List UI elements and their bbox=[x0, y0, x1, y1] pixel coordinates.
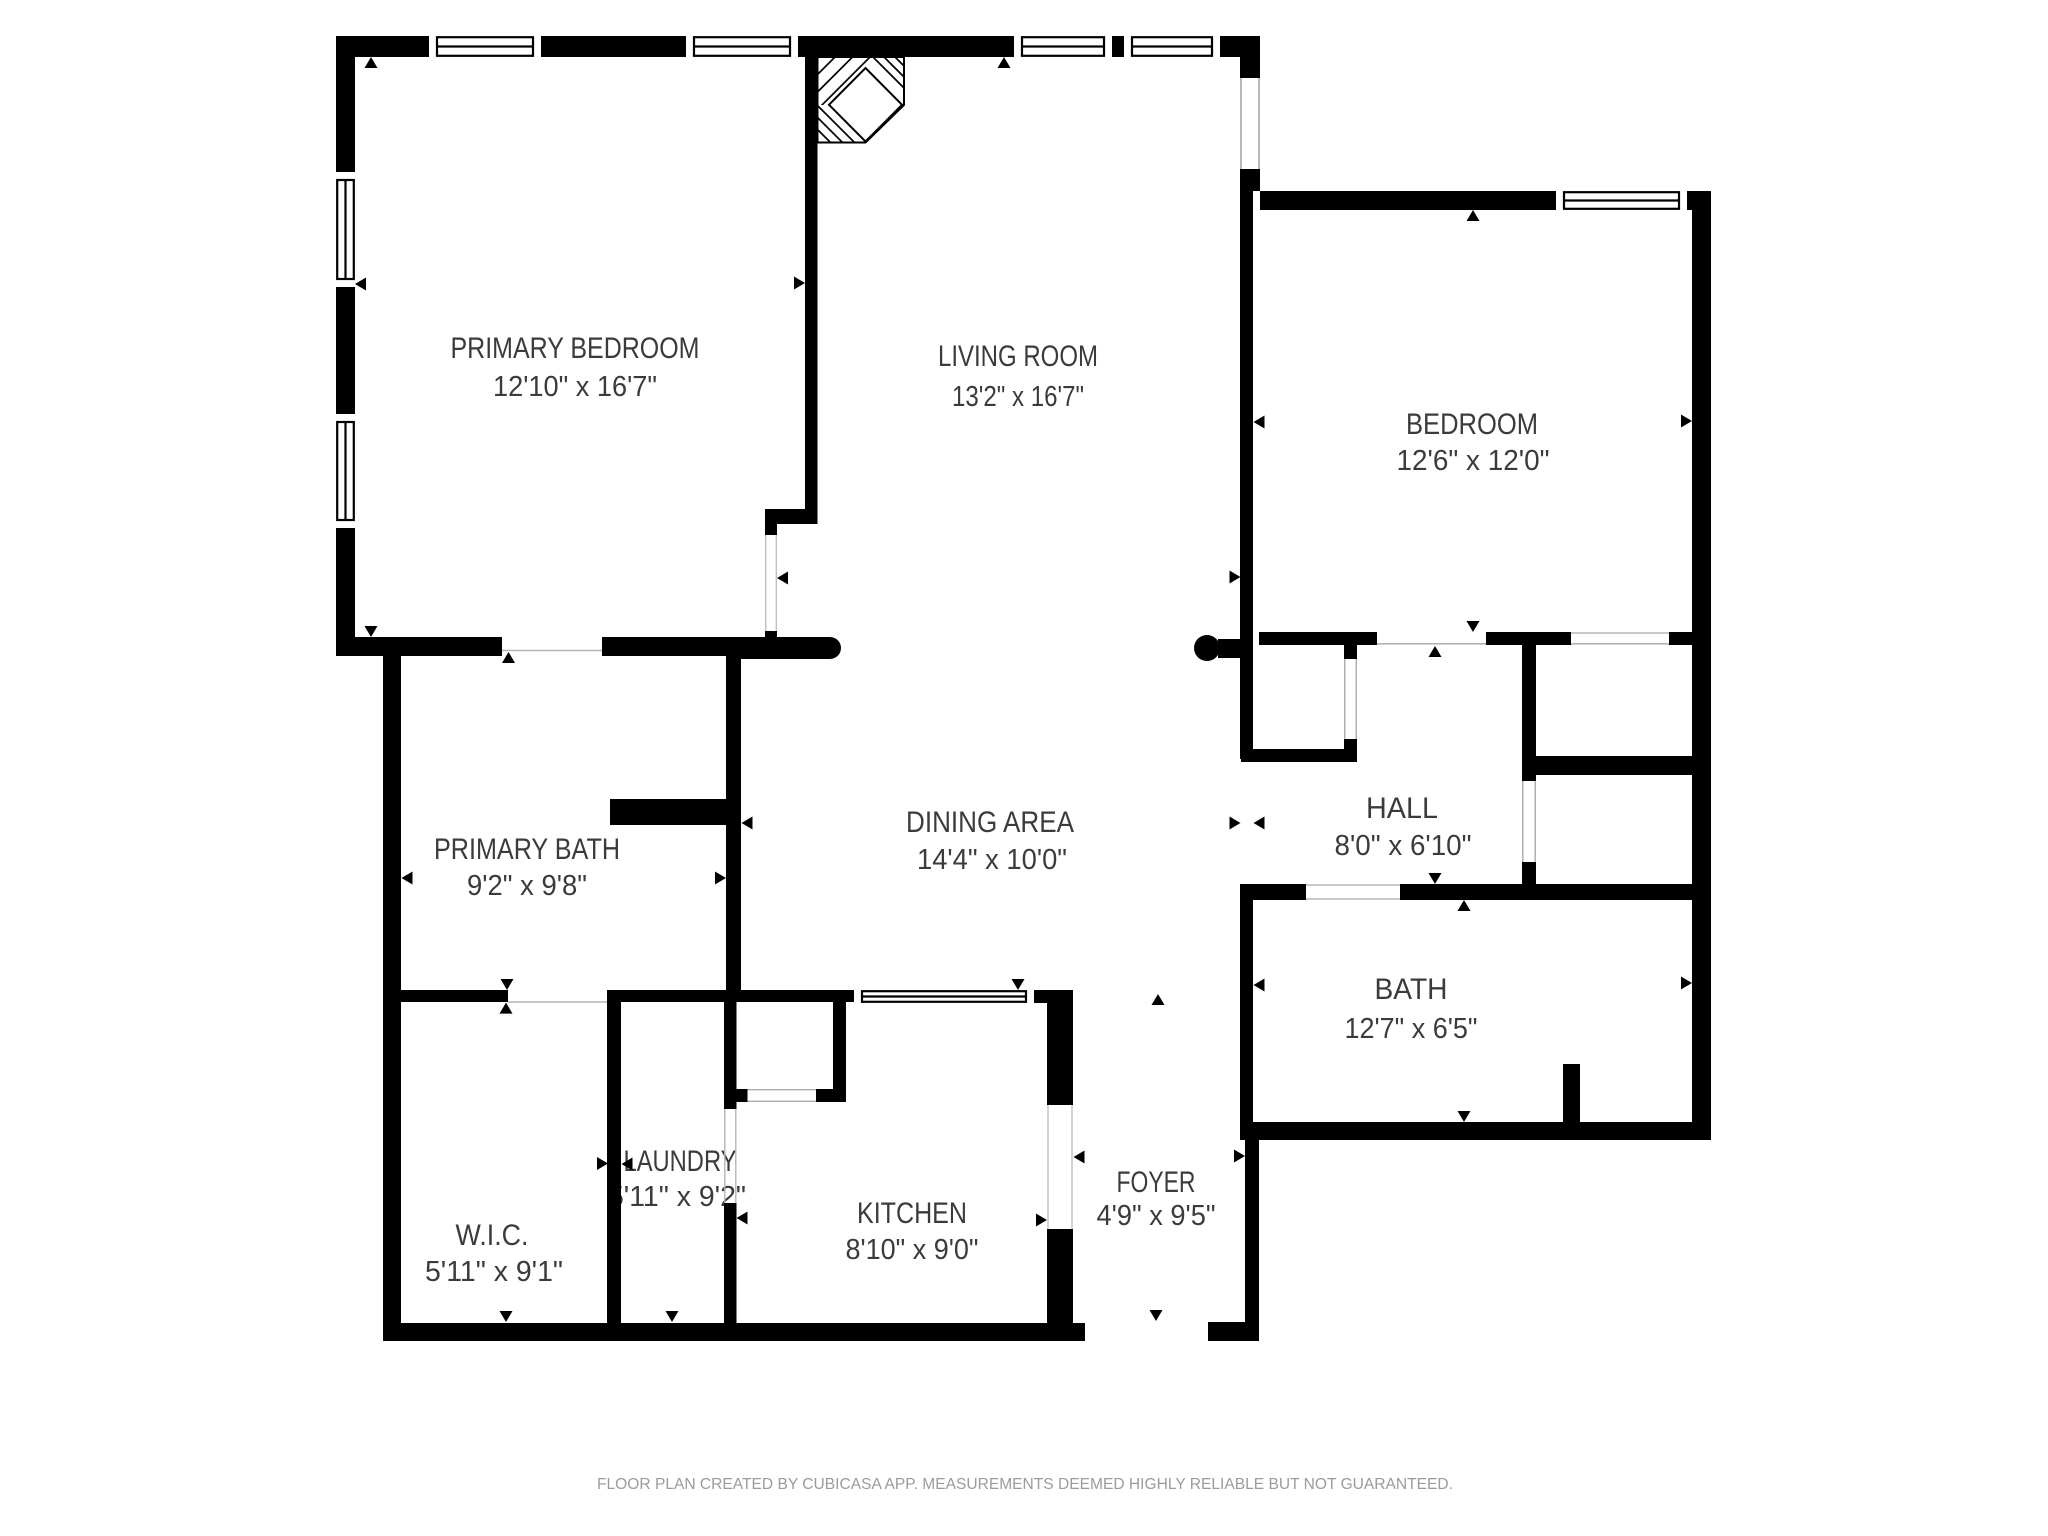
svg-text:PRIMARY BEDROOM: PRIMARY BEDROOM bbox=[451, 332, 700, 365]
svg-text:PRIMARY BATH: PRIMARY BATH bbox=[434, 833, 620, 866]
svg-text:KITCHEN: KITCHEN bbox=[857, 1197, 967, 1230]
svg-text:LIVING ROOM: LIVING ROOM bbox=[938, 340, 1098, 373]
svg-text:13'2" x 16'7": 13'2" x 16'7" bbox=[952, 381, 1084, 413]
svg-text:HALL: HALL bbox=[1366, 792, 1438, 825]
svg-text:4'9" x 9'5": 4'9" x 9'5" bbox=[1097, 1200, 1216, 1232]
svg-text:8'0" x 6'10": 8'0" x 6'10" bbox=[1335, 830, 1472, 862]
svg-text:5'11" x 9'1": 5'11" x 9'1" bbox=[425, 1256, 563, 1288]
svg-text:FLOOR PLAN CREATED BY CUBICASA: FLOOR PLAN CREATED BY CUBICASA APP. MEAS… bbox=[597, 1476, 1453, 1493]
svg-text:12'7" x 6'5": 12'7" x 6'5" bbox=[1345, 1013, 1478, 1045]
svg-text:FOYER: FOYER bbox=[1117, 1166, 1196, 1199]
svg-text:12'10" x 16'7": 12'10" x 16'7" bbox=[493, 371, 657, 403]
svg-text:BEDROOM: BEDROOM bbox=[1406, 408, 1538, 441]
svg-text:8'10" x 9'0": 8'10" x 9'0" bbox=[846, 1234, 979, 1266]
svg-text:BATH: BATH bbox=[1375, 973, 1448, 1006]
svg-text:DINING AREA: DINING AREA bbox=[906, 806, 1074, 839]
svg-text:W.I.C.: W.I.C. bbox=[456, 1219, 529, 1252]
svg-text:14'4" x 10'0": 14'4" x 10'0" bbox=[917, 844, 1067, 876]
svg-text:12'6" x 12'0": 12'6" x 12'0" bbox=[1397, 445, 1550, 477]
svg-text:LAUNDRY: LAUNDRY bbox=[624, 1145, 737, 1178]
svg-text:9'2" x 9'8": 9'2" x 9'8" bbox=[467, 870, 587, 902]
